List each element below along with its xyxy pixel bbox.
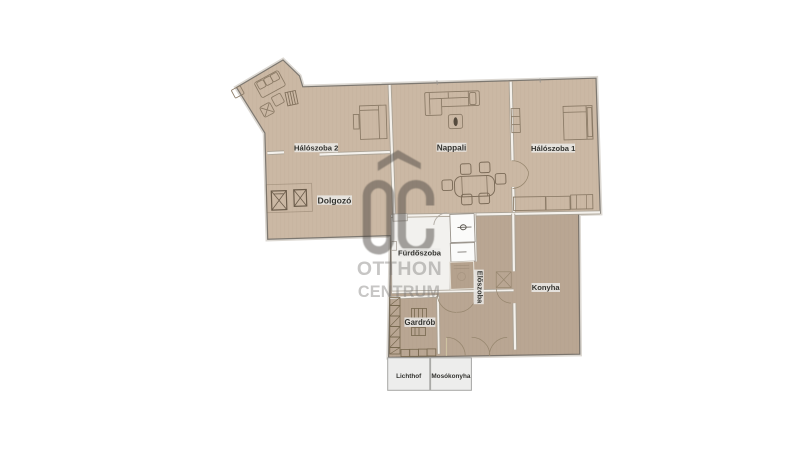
svg-text:OTTHON: OTTHON xyxy=(357,258,442,280)
svg-text:Nappali: Nappali xyxy=(437,144,467,153)
svg-text:Lichthof: Lichthof xyxy=(396,373,422,380)
svg-text:Hálószoba 1: Hálószoba 1 xyxy=(531,144,576,153)
svg-text:Konyha: Konyha xyxy=(532,283,561,292)
svg-text:Fürdőszoba: Fürdőszoba xyxy=(398,249,442,258)
svg-text:Dolgozó: Dolgozó xyxy=(318,195,352,205)
svg-text:Mosókonyha: Mosókonyha xyxy=(431,373,471,380)
svg-text:Előszoba: Előszoba xyxy=(475,271,484,304)
svg-text:Gardrób: Gardrób xyxy=(405,318,436,327)
svg-text:Hálószoba 2: Hálószoba 2 xyxy=(294,143,338,152)
svg-text:CENTRUM: CENTRUM xyxy=(358,283,440,301)
